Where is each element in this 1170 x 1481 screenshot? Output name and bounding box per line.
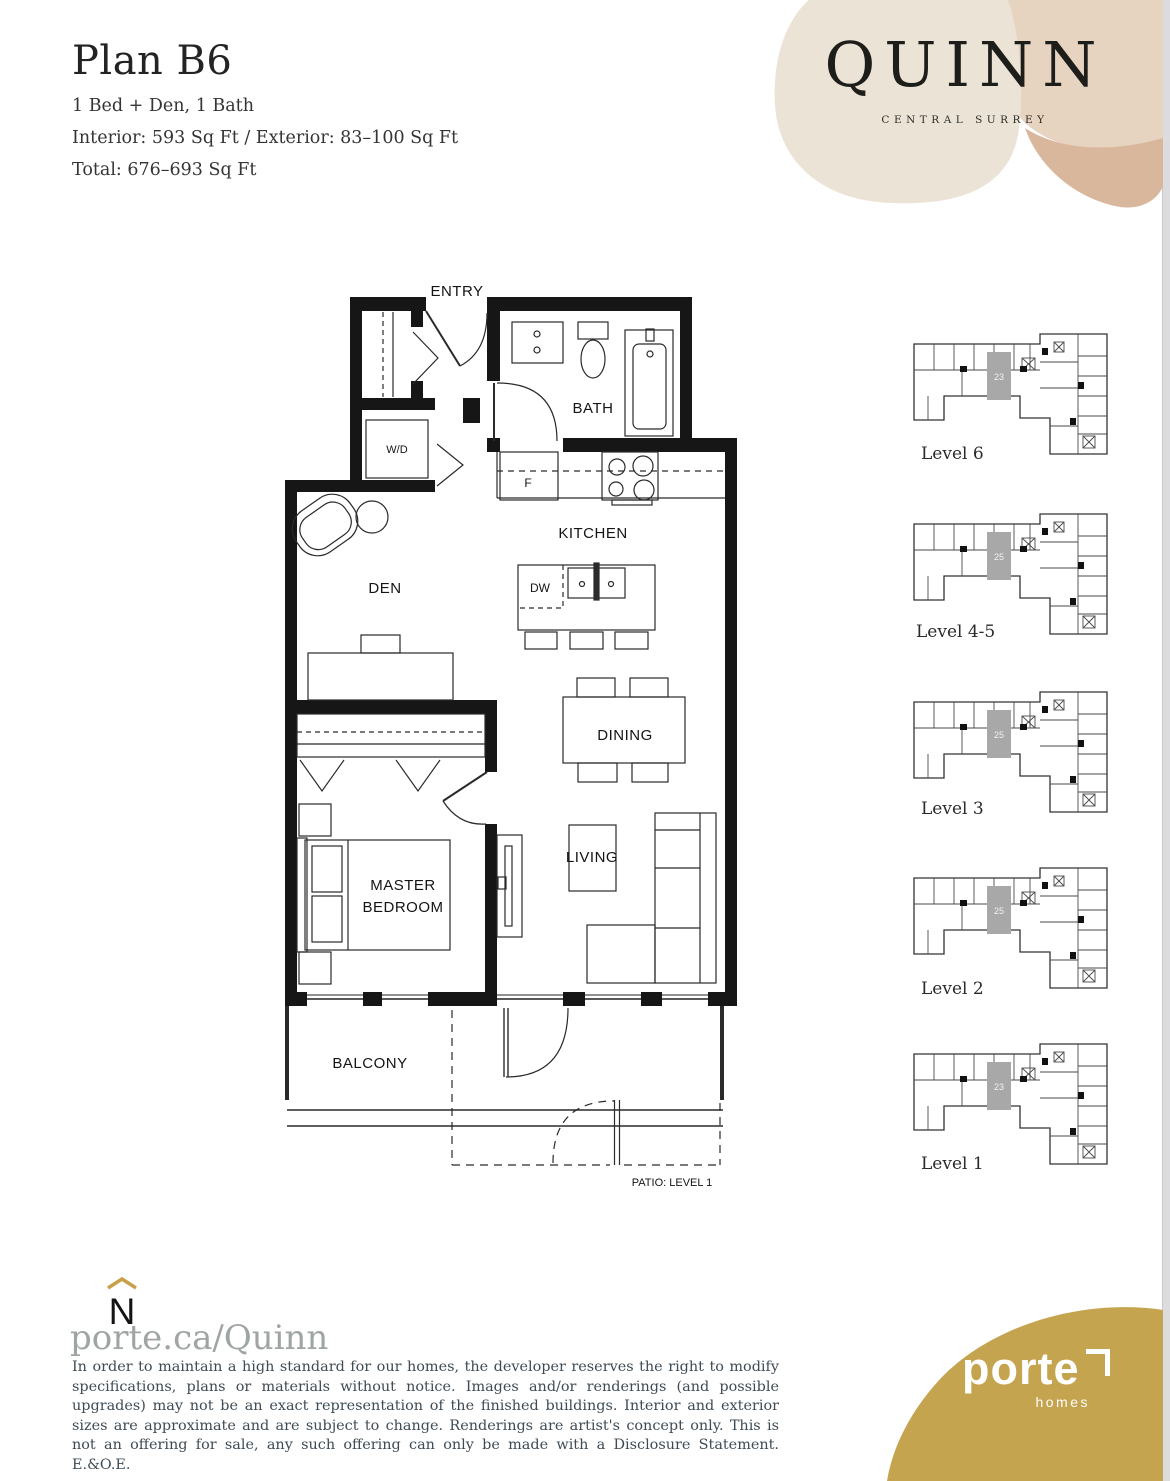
label-entry: ENTRY [430,283,483,300]
page-title: Plan B6 [72,38,232,84]
label-wd: W/D [386,444,407,456]
level-4-5-label: Level 4-5 [916,622,995,642]
level-2-label: Level 2 [921,979,984,999]
spec-total: Total: 676–693 Sq Ft [72,160,256,180]
brand-wordmark: QUINN [795,28,1135,101]
page-edge-strip [1162,0,1170,1481]
unit-number: 25 [994,730,1004,740]
label-living: LIVING [566,849,618,866]
walls [285,297,737,1006]
level-3-label: Level 3 [921,799,984,819]
spec-interior-exterior: Interior: 593 Sq Ft / Exterior: 83–100 S… [72,128,458,148]
unit-number: 23 [994,372,1004,382]
unit-number: 23 [994,1082,1004,1092]
label-balcony: BALCONY [332,1055,407,1072]
floorplan-drawing: ENTRY BATH W/D F KITCHEN DEN DW DINING L… [280,283,745,1205]
label-den: DEN [368,580,401,597]
level-1-label: Level 1 [921,1154,984,1174]
label-bath: BATH [573,400,614,417]
unit-number: 25 [994,906,1004,916]
brand-tagline: CENTRAL SURREY [795,114,1135,126]
porte-logo-word: porte [962,1346,1080,1391]
porte-bracket-icon [1086,1349,1110,1376]
spec-bed-bath: 1 Bed + Den, 1 Bath [72,96,254,116]
label-kitchen: KITCHEN [558,525,627,542]
label-patio: PATIO: LEVEL 1 [632,1177,713,1189]
website-link[interactable]: porte.ca/Quinn [70,1318,328,1358]
label-dining: DINING [597,727,653,744]
disclaimer-text: In order to maintain a high standard for… [72,1358,779,1476]
porte-logo: porte [962,1346,1110,1391]
level-6-label: Level 6 [921,444,984,464]
label-master: MASTER [370,877,436,894]
unit-number: 25 [994,552,1004,562]
label-dw: DW [530,581,551,595]
porte-logo-sub: homes [962,1394,1090,1410]
label-fridge: F [524,476,531,490]
label-bedroom: BEDROOM [362,899,443,916]
